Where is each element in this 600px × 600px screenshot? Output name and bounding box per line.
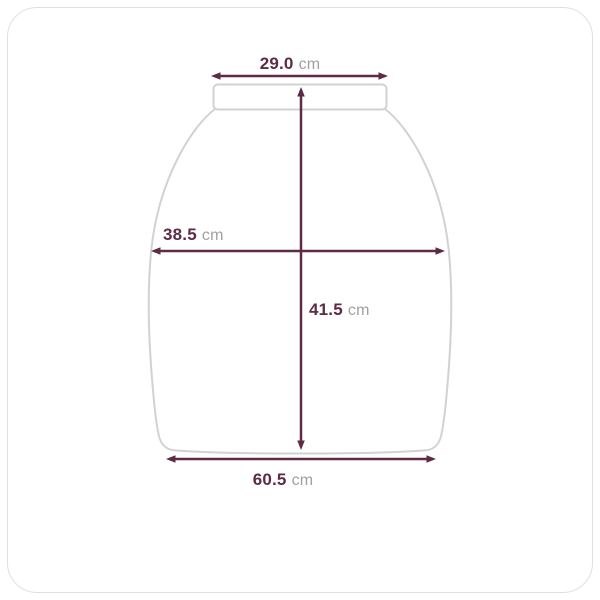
arrowhead-right-icon bbox=[436, 247, 446, 255]
arrowhead-right-icon bbox=[427, 455, 437, 463]
length-value: 41.5 bbox=[309, 300, 343, 319]
length-dimension bbox=[297, 87, 305, 450]
arrowhead-right-icon bbox=[379, 72, 389, 80]
length-label: 41.5cm bbox=[309, 300, 370, 321]
bottom-width-dimension bbox=[166, 455, 436, 463]
length-unit: cm bbox=[348, 302, 370, 319]
diagram-svg bbox=[0, 0, 600, 600]
top-width-unit: cm bbox=[299, 56, 321, 73]
middle-width-dimension bbox=[151, 247, 445, 255]
top-width-label: 29.0cm bbox=[260, 54, 321, 75]
arrowhead-left-icon bbox=[166, 455, 176, 463]
middle-width-label: 38.5cm bbox=[163, 225, 224, 246]
top-width-value: 29.0 bbox=[260, 54, 294, 73]
middle-width-value: 38.5 bbox=[163, 225, 197, 244]
arrowhead-down-icon bbox=[297, 441, 305, 451]
middle-width-unit: cm bbox=[202, 227, 224, 244]
bottom-width-value: 60.5 bbox=[253, 470, 287, 489]
measurement-diagram: 29.0cm 38.5cm 41.5cm 60.5cm bbox=[0, 0, 600, 600]
bottom-width-unit: cm bbox=[292, 472, 314, 489]
bottom-width-label: 60.5cm bbox=[253, 470, 314, 491]
arrowhead-left-icon bbox=[211, 72, 221, 80]
